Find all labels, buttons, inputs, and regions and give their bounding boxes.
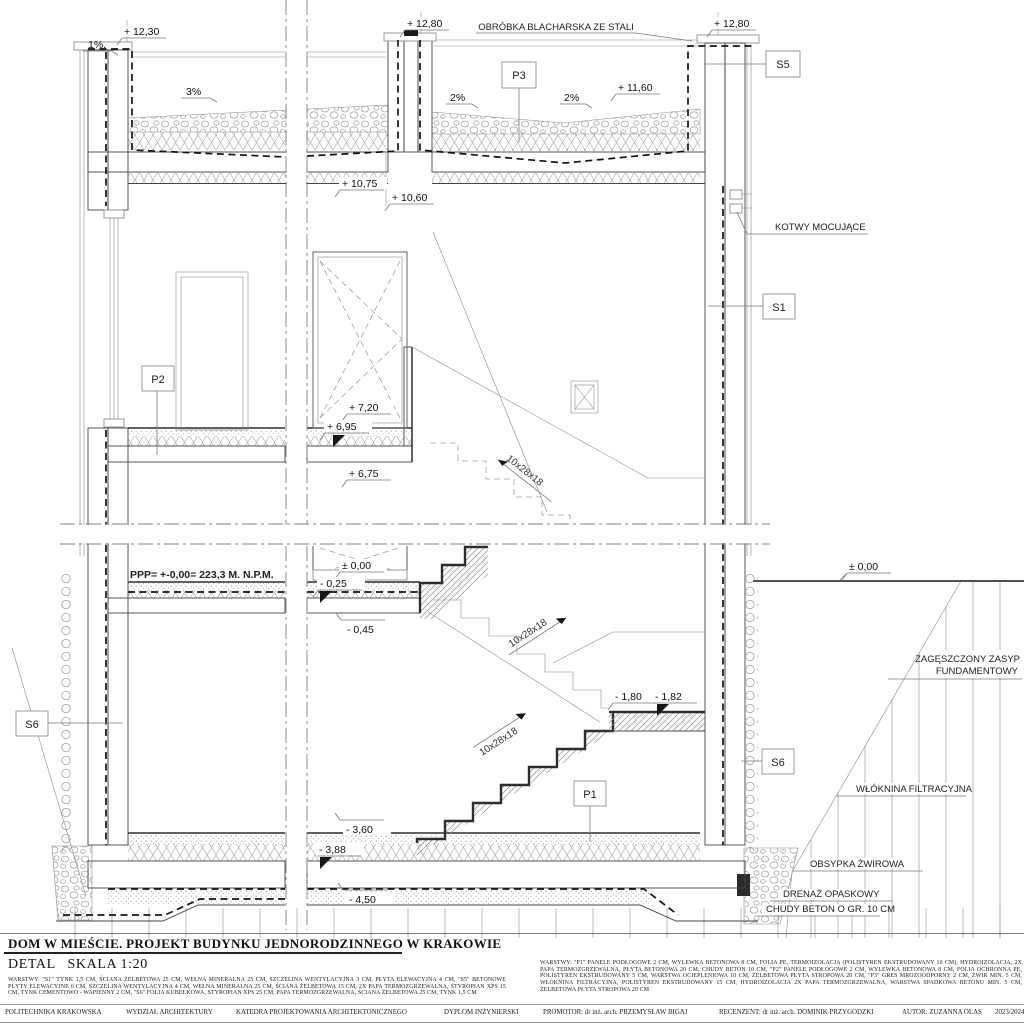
footer-bottom-rule <box>0 1022 1024 1023</box>
svg-text:± 0,00: ± 0,00 <box>849 561 878 573</box>
layers-description-floors: WARSTWY: "P1" PANELE PODŁOGOWE 2 CM, WYL… <box>540 960 1022 994</box>
callout-geotextile: WŁÓKNINA FILTRACYJNA <box>836 783 973 796</box>
svg-text:10x28x18: 10x28x18 <box>507 617 550 650</box>
dimple-foil-left <box>60 572 72 852</box>
callout-drainage: DRENAŻ OPASKOWY <box>770 889 893 901</box>
svg-text:+ 6,75: + 6,75 <box>349 468 379 480</box>
floor-slabs <box>56 347 758 921</box>
svg-text:- 3,60: - 3,60 <box>346 824 373 836</box>
stairs <box>412 232 705 855</box>
svg-text:- 0,25: - 0,25 <box>320 578 347 590</box>
stair-label-lower: 10x28x18 <box>470 709 534 760</box>
level-mark-0-00-ext: ± 0,00 <box>842 560 894 580</box>
lean-concrete-label: CHUDY BETON O GR. 10 CM <box>766 904 895 915</box>
title-block-top-rule <box>0 933 1024 934</box>
tag-p2: P2 <box>151 374 164 386</box>
project-title: DOM W MIEŚCIE. PROJEKT BUDYNKU JEDNORODZ… <box>8 936 501 952</box>
flashing-label: OBRÓBKA BLACHARSKA ZE STALI <box>478 22 634 33</box>
backfill-label-2: FUNDAMENTOWY <box>936 666 1019 677</box>
membranes <box>58 40 754 915</box>
footer-year: 2023/2024 <box>995 1009 1024 1016</box>
right-parapet-cap <box>697 35 759 43</box>
svg-text:+ 12,80: + 12,80 <box>407 18 442 30</box>
interior-door <box>176 272 248 430</box>
slope-2pct: 2% <box>564 92 579 104</box>
tag-s6-right: S6 <box>771 757 784 769</box>
level-mark-0-25: - 0,25 <box>313 577 365 603</box>
svg-text:- 1,82: - 1,82 <box>655 691 682 703</box>
svg-text:+ 7,20: + 7,20 <box>349 402 379 414</box>
level-mark-10-75: + 10,75 <box>335 177 387 197</box>
svg-text:10x28x18: 10x28x18 <box>504 453 545 489</box>
svg-text:+ 12,30: + 12,30 <box>124 26 159 38</box>
callout-flashing: OBRÓBKA BLACHARSKA ZE STALI <box>476 22 692 41</box>
title-underline <box>4 952 402 954</box>
drainage-label: DRENAŻ OPASKOWY <box>783 889 880 900</box>
window-frame-head <box>104 210 124 218</box>
level-mark-3-88: - 3,88 <box>316 843 364 869</box>
footer-promoter: PROMOTOR: dr inż. arch. PRZEMYSŁAW BIGAJ <box>543 1009 687 1016</box>
level-mark-12-80-right: + 12,80 <box>707 17 759 37</box>
anchors-label: KOTWY MOCUJĄCE <box>775 222 866 233</box>
svg-text:+ 6,95: + 6,95 <box>327 421 357 433</box>
slope-2pct: 2% <box>450 92 465 104</box>
roof <box>74 30 759 184</box>
detail-scale-label: DETAL SKALA 1:20 <box>8 957 148 973</box>
footer-thesis: DYPLOM INŻYNIERSKI <box>444 1009 518 1016</box>
slope-1pct: 1%. <box>88 39 106 51</box>
svg-text:+ 12,80: + 12,80 <box>714 18 749 30</box>
footer-top-rule <box>0 1004 1024 1005</box>
footer-department: KATEDRA PROJEKTOWANIA ARCHITEKTONICZNEGO <box>236 1009 407 1016</box>
level-mark-3-60: - 3,60 <box>335 813 391 836</box>
svg-text:+ 11,60: + 11,60 <box>618 82 653 94</box>
anchor-bracket <box>730 204 742 213</box>
footer-reviewer: RECENZENT: dr inż. arch. DOMINIK PRZYGOD… <box>719 1009 873 1016</box>
stair-label-mid: 10x28x18 <box>502 607 568 657</box>
footer-faculty: WYDZIAŁ ARCHITEKTURY <box>126 1009 213 1016</box>
tag-p3: P3 <box>512 70 525 82</box>
dimple-foil-right <box>746 572 758 852</box>
level-mark-7-20: + 7,20 <box>342 401 394 421</box>
svg-text:+ 10,75: + 10,75 <box>342 178 377 190</box>
tag-s5: S5 <box>776 59 789 71</box>
level-mark-6-75: + 6,75 <box>342 467 394 487</box>
section-drawing: OBRÓBKA BLACHARSKA ZE STALI KOTWY MOCUJĄ… <box>0 0 1024 1024</box>
svg-text:- 1,80: - 1,80 <box>615 691 642 703</box>
backfill-label-1: ZAGĘSZCZONY ZASYP <box>915 654 1020 665</box>
parapet-seal <box>404 30 418 36</box>
svg-text:+ 10,60: + 10,60 <box>392 192 427 204</box>
datum-label: PPP= +-0,00= 223,3 M. N.P.M. <box>130 569 274 581</box>
svg-text:± 0,00: ± 0,00 <box>342 560 371 572</box>
anchor-bracket <box>730 190 742 199</box>
gravel-pocket-left <box>52 846 92 920</box>
svg-text:- 4,50: - 4,50 <box>349 894 376 906</box>
openings <box>104 210 598 580</box>
slope-3pct: 3% <box>186 86 201 98</box>
stair-label-upper: 10x28x18 <box>497 450 560 504</box>
level-mark-0-45: - 0,45 <box>336 613 392 636</box>
gravel-label: OBSYPKA ŻWIROWA <box>810 859 905 870</box>
svg-text:- 0,45: - 0,45 <box>347 624 374 636</box>
drain-pipe <box>737 874 750 896</box>
tag-p1: P1 <box>583 789 596 801</box>
footer-university: POLITECHNIKA KRAKOWSKA <box>5 1009 102 1016</box>
callout-lean-concrete: CHUDY BETON O GR. 10 CM <box>758 904 895 916</box>
tag-s1: S1 <box>772 302 785 314</box>
geotextile-label: WŁÓKNINA FILTRACYJNA <box>856 784 973 795</box>
footer-author: AUTOR: ZUZANNA OLAS <box>902 1009 982 1016</box>
svg-text:- 3,88: - 3,88 <box>319 844 346 856</box>
level-mark-10-60: + 10,60 <box>385 191 437 211</box>
level-mark-11-60: + 11,60 <box>611 81 663 101</box>
window-frame-sill <box>104 419 124 427</box>
ground-soil <box>12 572 1024 938</box>
level-mark-4-50: - 4,50 <box>338 883 394 906</box>
tag-s6-left: S6 <box>25 719 38 731</box>
callout-anchors: KOTWY MOCUJĄCE <box>737 212 868 234</box>
callout-gravel: OBSYPKA ŻWIROWA <box>793 858 923 871</box>
drawing-sheet: OBRÓBKA BLACHARSKA ZE STALI KOTWY MOCUJĄ… <box>0 0 1024 1024</box>
layers-description-walls: WARSTWY: "S1" TYNK 1,5 CM, ŚCIANA ŻELBET… <box>8 977 506 997</box>
